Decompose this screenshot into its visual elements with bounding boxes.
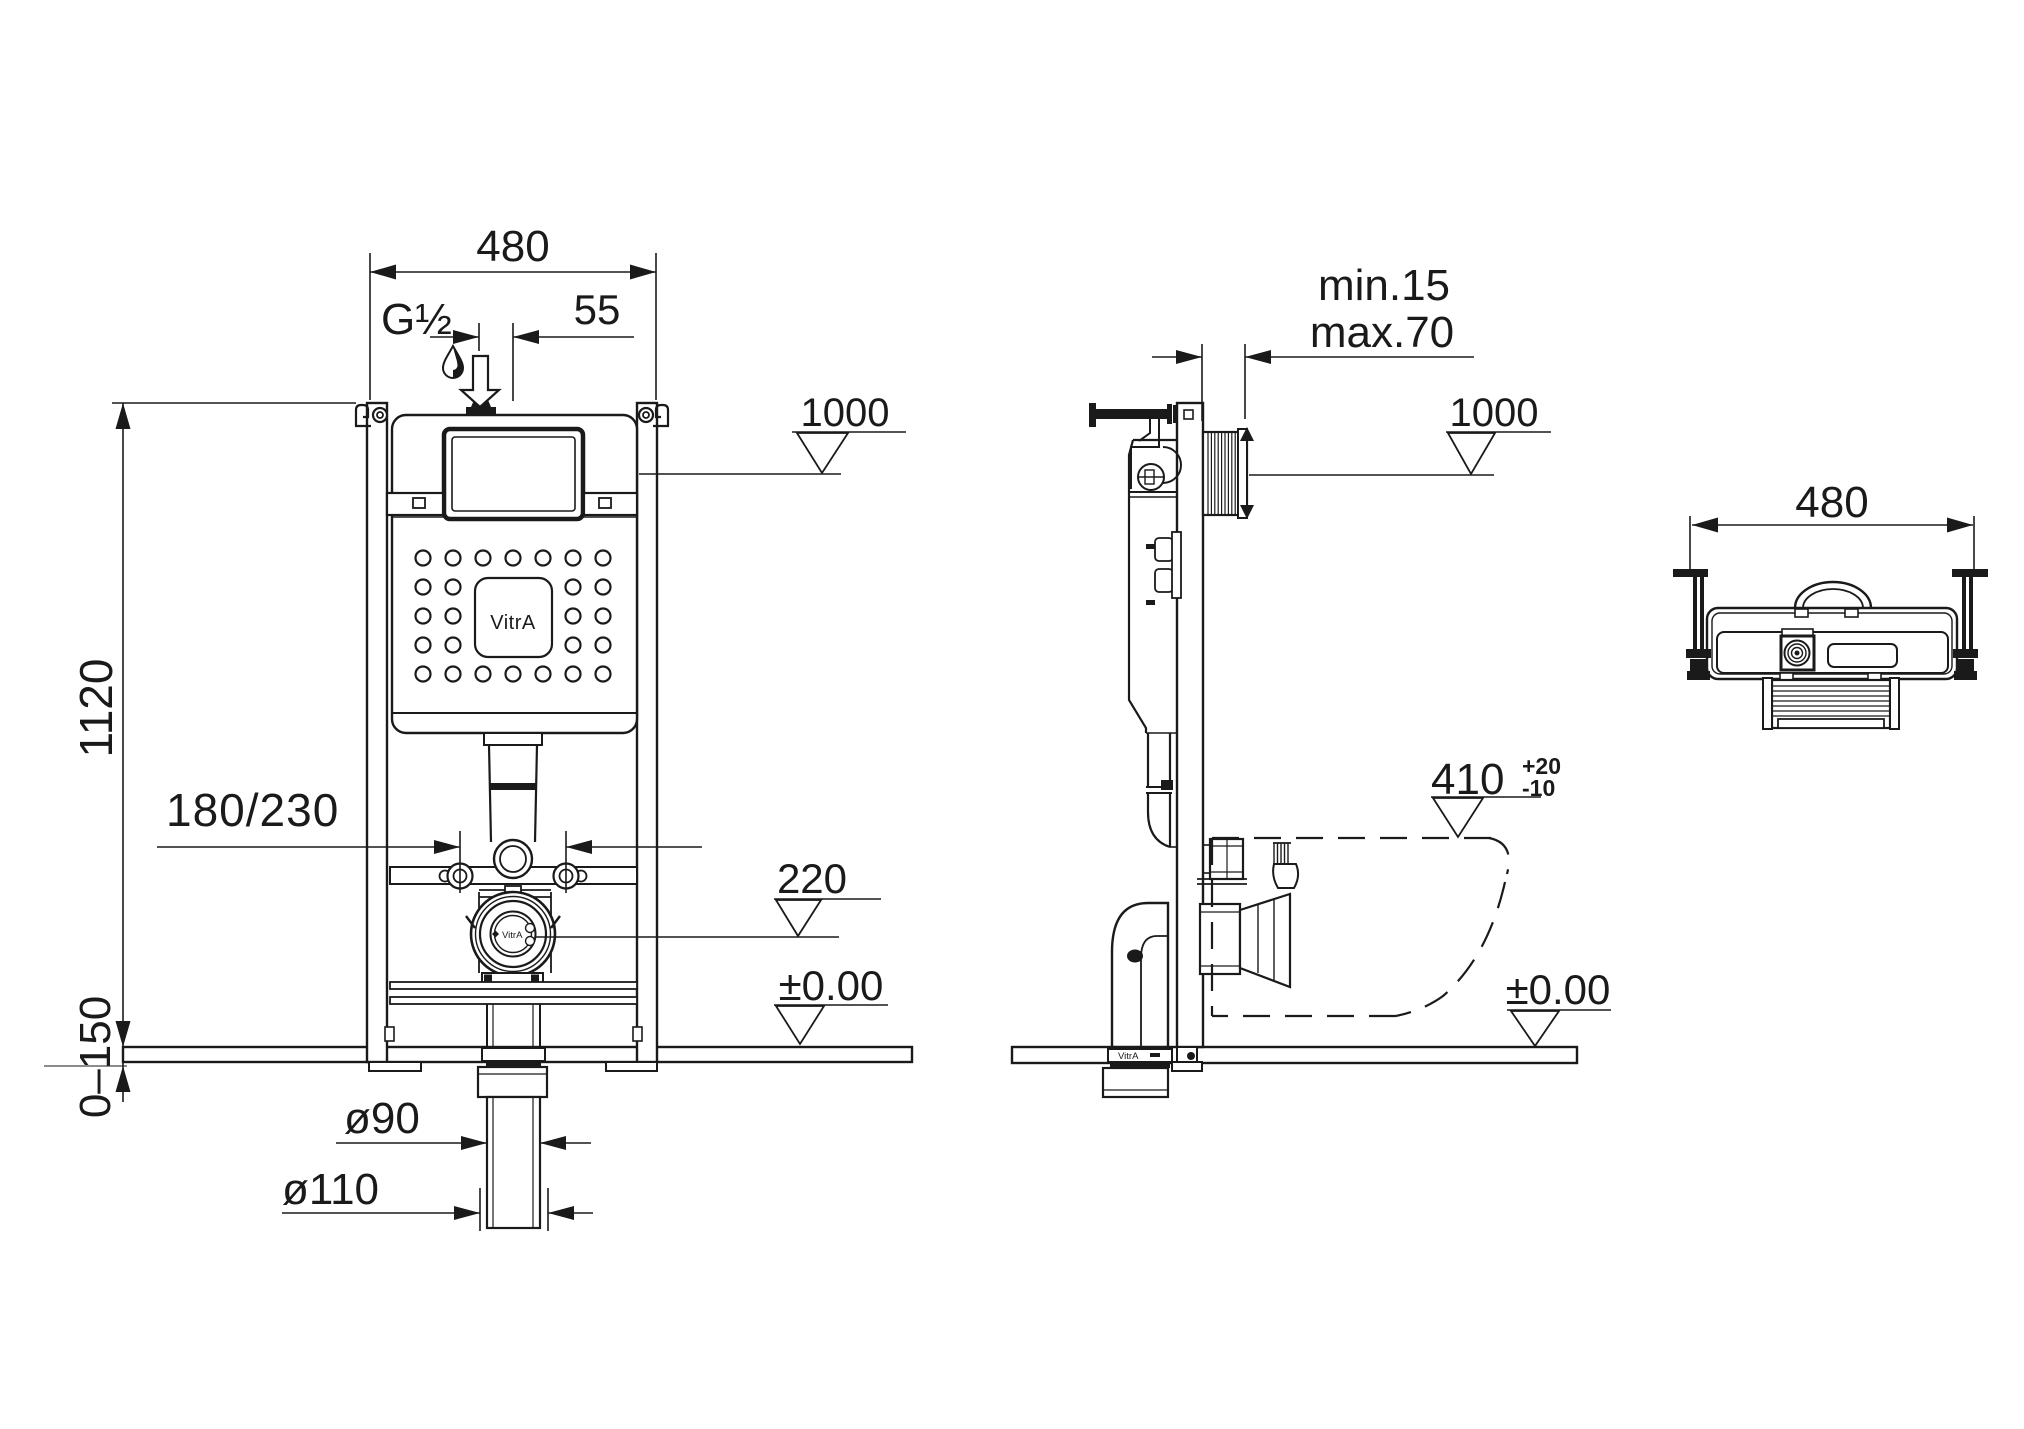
access-window	[444, 429, 583, 519]
outlet-inner-dia-label: ø90	[344, 1094, 420, 1143]
front-floor	[44, 1047, 912, 1066]
drain-outlet: VitrA	[466, 886, 560, 983]
flush-valve-clip-upper	[1155, 538, 1173, 561]
inlet-dims: G½ 55	[381, 286, 634, 407]
top-width-label: 480	[1795, 478, 1868, 527]
outlet-logo: VitrA	[502, 930, 523, 941]
wall-distance-max-label: max.70	[1310, 308, 1454, 357]
cistern-body: VitrA	[387, 400, 637, 733]
top-view: 480	[1673, 478, 1988, 729]
floor-buildup-dim: 0–150	[71, 996, 131, 1118]
bowl-rim-level: 410 +20 -10	[1431, 753, 1561, 837]
outlet-outer-dia-dim: ø110	[282, 1165, 593, 1231]
below-floor-drain	[478, 1048, 547, 1228]
front-level-1000-label: 1000	[801, 391, 890, 435]
wall-distance-dim: min.15 max.70	[1152, 261, 1474, 421]
outlet-level-label: 220	[777, 855, 847, 902]
inlet-arrow-icon	[461, 356, 499, 407]
side-level-1000: 1000	[1249, 391, 1551, 475]
top-inlet-valve	[1781, 636, 1814, 670]
front-level-1000: 1000	[639, 391, 906, 474]
top-arch-inner	[1803, 589, 1863, 608]
drain-connection	[1200, 894, 1290, 987]
side-floor-level-label: ±0.00	[1506, 966, 1611, 1013]
frame-height-dim: 1120	[70, 403, 356, 1047]
side-level-1000-label: 1000	[1450, 391, 1539, 435]
brand-logo: VitrA	[490, 612, 536, 634]
side-floor-level: ±0.00	[1506, 966, 1611, 1046]
installation-drawing: VitrA	[0, 0, 2024, 1429]
front-floor-level-label: ±0.00	[779, 962, 884, 1009]
top-arch-outer	[1795, 582, 1871, 608]
mount-tab-left	[387, 493, 443, 515]
flush-valve-clip-lower	[1155, 569, 1173, 592]
top-cistern	[1707, 608, 1957, 681]
wall-distance-min-label: min.15	[1318, 261, 1450, 310]
front-view: VitrA	[44, 222, 912, 1231]
elbow-logo: VitrA	[1118, 1051, 1139, 1062]
side-flush-bend	[1146, 733, 1177, 847]
frame-height-label: 1120	[70, 659, 122, 758]
floor-buildup-label: 0–150	[71, 996, 120, 1118]
drain-elbow: VitrA	[1103, 903, 1172, 1097]
outlet-outer-dia-label: ø110	[282, 1165, 379, 1214]
anchor-spacing-label: 180/230	[166, 784, 339, 836]
inlet-offset-label: 55	[574, 286, 621, 333]
front-width-label: 480	[476, 222, 549, 271]
flush-plate-sleeve	[1203, 427, 1254, 519]
outlet-inner-dia-dim: ø90	[336, 1094, 591, 1150]
top-sleeve	[1763, 678, 1899, 729]
side-view: VitrA	[1012, 261, 1611, 1097]
brand-panel: VitrA	[475, 578, 552, 657]
lower-frame	[390, 982, 637, 1047]
drawing-svg: VitrA	[0, 0, 2024, 1429]
side-frame	[1172, 403, 1203, 1071]
side-floor	[1012, 1047, 1577, 1063]
side-cistern	[1129, 440, 1181, 733]
front-floor-level: ±0.00	[774, 962, 888, 1044]
flush-pipe	[484, 733, 542, 842]
top-width-dim: 480	[1690, 478, 1974, 574]
